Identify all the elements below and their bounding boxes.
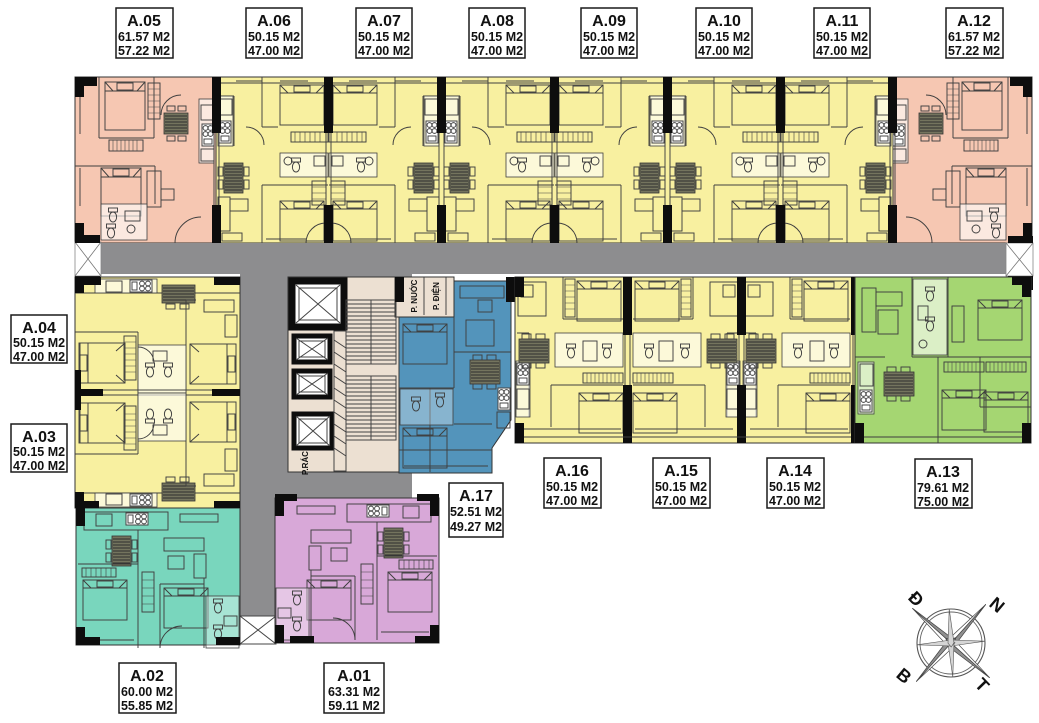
svg-text:47.00 M2: 47.00 M2: [698, 44, 750, 58]
svg-text:49.27 M2: 49.27 M2: [450, 520, 502, 534]
svg-text:79.61 M2: 79.61 M2: [917, 481, 969, 495]
svg-text:50.15 M2: 50.15 M2: [471, 30, 523, 44]
svg-text:50.15 M2: 50.15 M2: [546, 480, 598, 494]
svg-text:A.01: A.01: [337, 668, 371, 685]
svg-text:A.06: A.06: [257, 13, 291, 30]
svg-text:63.31 M2: 63.31 M2: [328, 685, 380, 699]
svg-text:47.00 M2: 47.00 M2: [13, 459, 65, 473]
svg-text:P. ĐIỆN: P. ĐIỆN: [432, 282, 441, 310]
svg-text:A.17: A.17: [459, 488, 493, 505]
svg-text:A.12: A.12: [957, 13, 991, 30]
svg-text:59.11 M2: 59.11 M2: [328, 699, 379, 713]
svg-text:47.00 M2: 47.00 M2: [358, 44, 410, 58]
svg-text:A.04: A.04: [22, 320, 56, 337]
svg-text:A.13: A.13: [926, 464, 960, 481]
svg-text:A.15: A.15: [664, 463, 698, 480]
svg-text:61.57 M2: 61.57 M2: [948, 30, 1000, 44]
svg-text:47.00 M2: 47.00 M2: [471, 44, 523, 58]
svg-text:50.15 M2: 50.15 M2: [13, 445, 65, 459]
svg-text:50.15 M2: 50.15 M2: [698, 30, 750, 44]
svg-text:47.00 M2: 47.00 M2: [13, 350, 65, 364]
svg-text:P.RÁC: P.RÁC: [301, 451, 310, 475]
svg-text:P. NUỚC: P. NUỚC: [410, 279, 419, 312]
svg-text:A.10: A.10: [707, 13, 741, 30]
svg-text:50.15 M2: 50.15 M2: [655, 480, 707, 494]
svg-text:57.22 M2: 57.22 M2: [948, 44, 1000, 58]
svg-text:47.00 M2: 47.00 M2: [769, 494, 821, 508]
svg-text:47.00 M2: 47.00 M2: [583, 44, 635, 58]
svg-text:A.07: A.07: [367, 13, 401, 30]
svg-text:57.22 M2: 57.22 M2: [118, 44, 170, 58]
svg-text:55.85 M2: 55.85 M2: [121, 699, 173, 713]
svg-text:A.11: A.11: [826, 13, 859, 30]
svg-text:A.02: A.02: [130, 668, 164, 685]
svg-text:47.00 M2: 47.00 M2: [546, 494, 598, 508]
svg-text:50.15 M2: 50.15 M2: [769, 480, 821, 494]
svg-text:75.00 M2: 75.00 M2: [917, 495, 969, 509]
svg-text:60.00 M2: 60.00 M2: [121, 685, 173, 699]
svg-text:50.15 M2: 50.15 M2: [816, 30, 868, 44]
svg-text:A.05: A.05: [127, 13, 161, 30]
svg-text:50.15 M2: 50.15 M2: [583, 30, 635, 44]
svg-text:A.14: A.14: [778, 463, 812, 480]
svg-text:50.15 M2: 50.15 M2: [358, 30, 410, 44]
svg-text:50.15 M2: 50.15 M2: [248, 30, 300, 44]
svg-text:47.00 M2: 47.00 M2: [816, 44, 868, 58]
svg-text:A.08: A.08: [480, 13, 514, 30]
svg-text:50.15 M2: 50.15 M2: [13, 336, 65, 350]
svg-text:A.03: A.03: [22, 429, 56, 446]
svg-text:A.09: A.09: [592, 13, 626, 30]
svg-text:61.57 M2: 61.57 M2: [118, 30, 170, 44]
svg-text:47.00 M2: 47.00 M2: [655, 494, 707, 508]
svg-text:A.16: A.16: [555, 463, 589, 480]
svg-text:52.51 M2: 52.51 M2: [450, 505, 502, 519]
svg-text:47.00 M2: 47.00 M2: [248, 44, 300, 58]
